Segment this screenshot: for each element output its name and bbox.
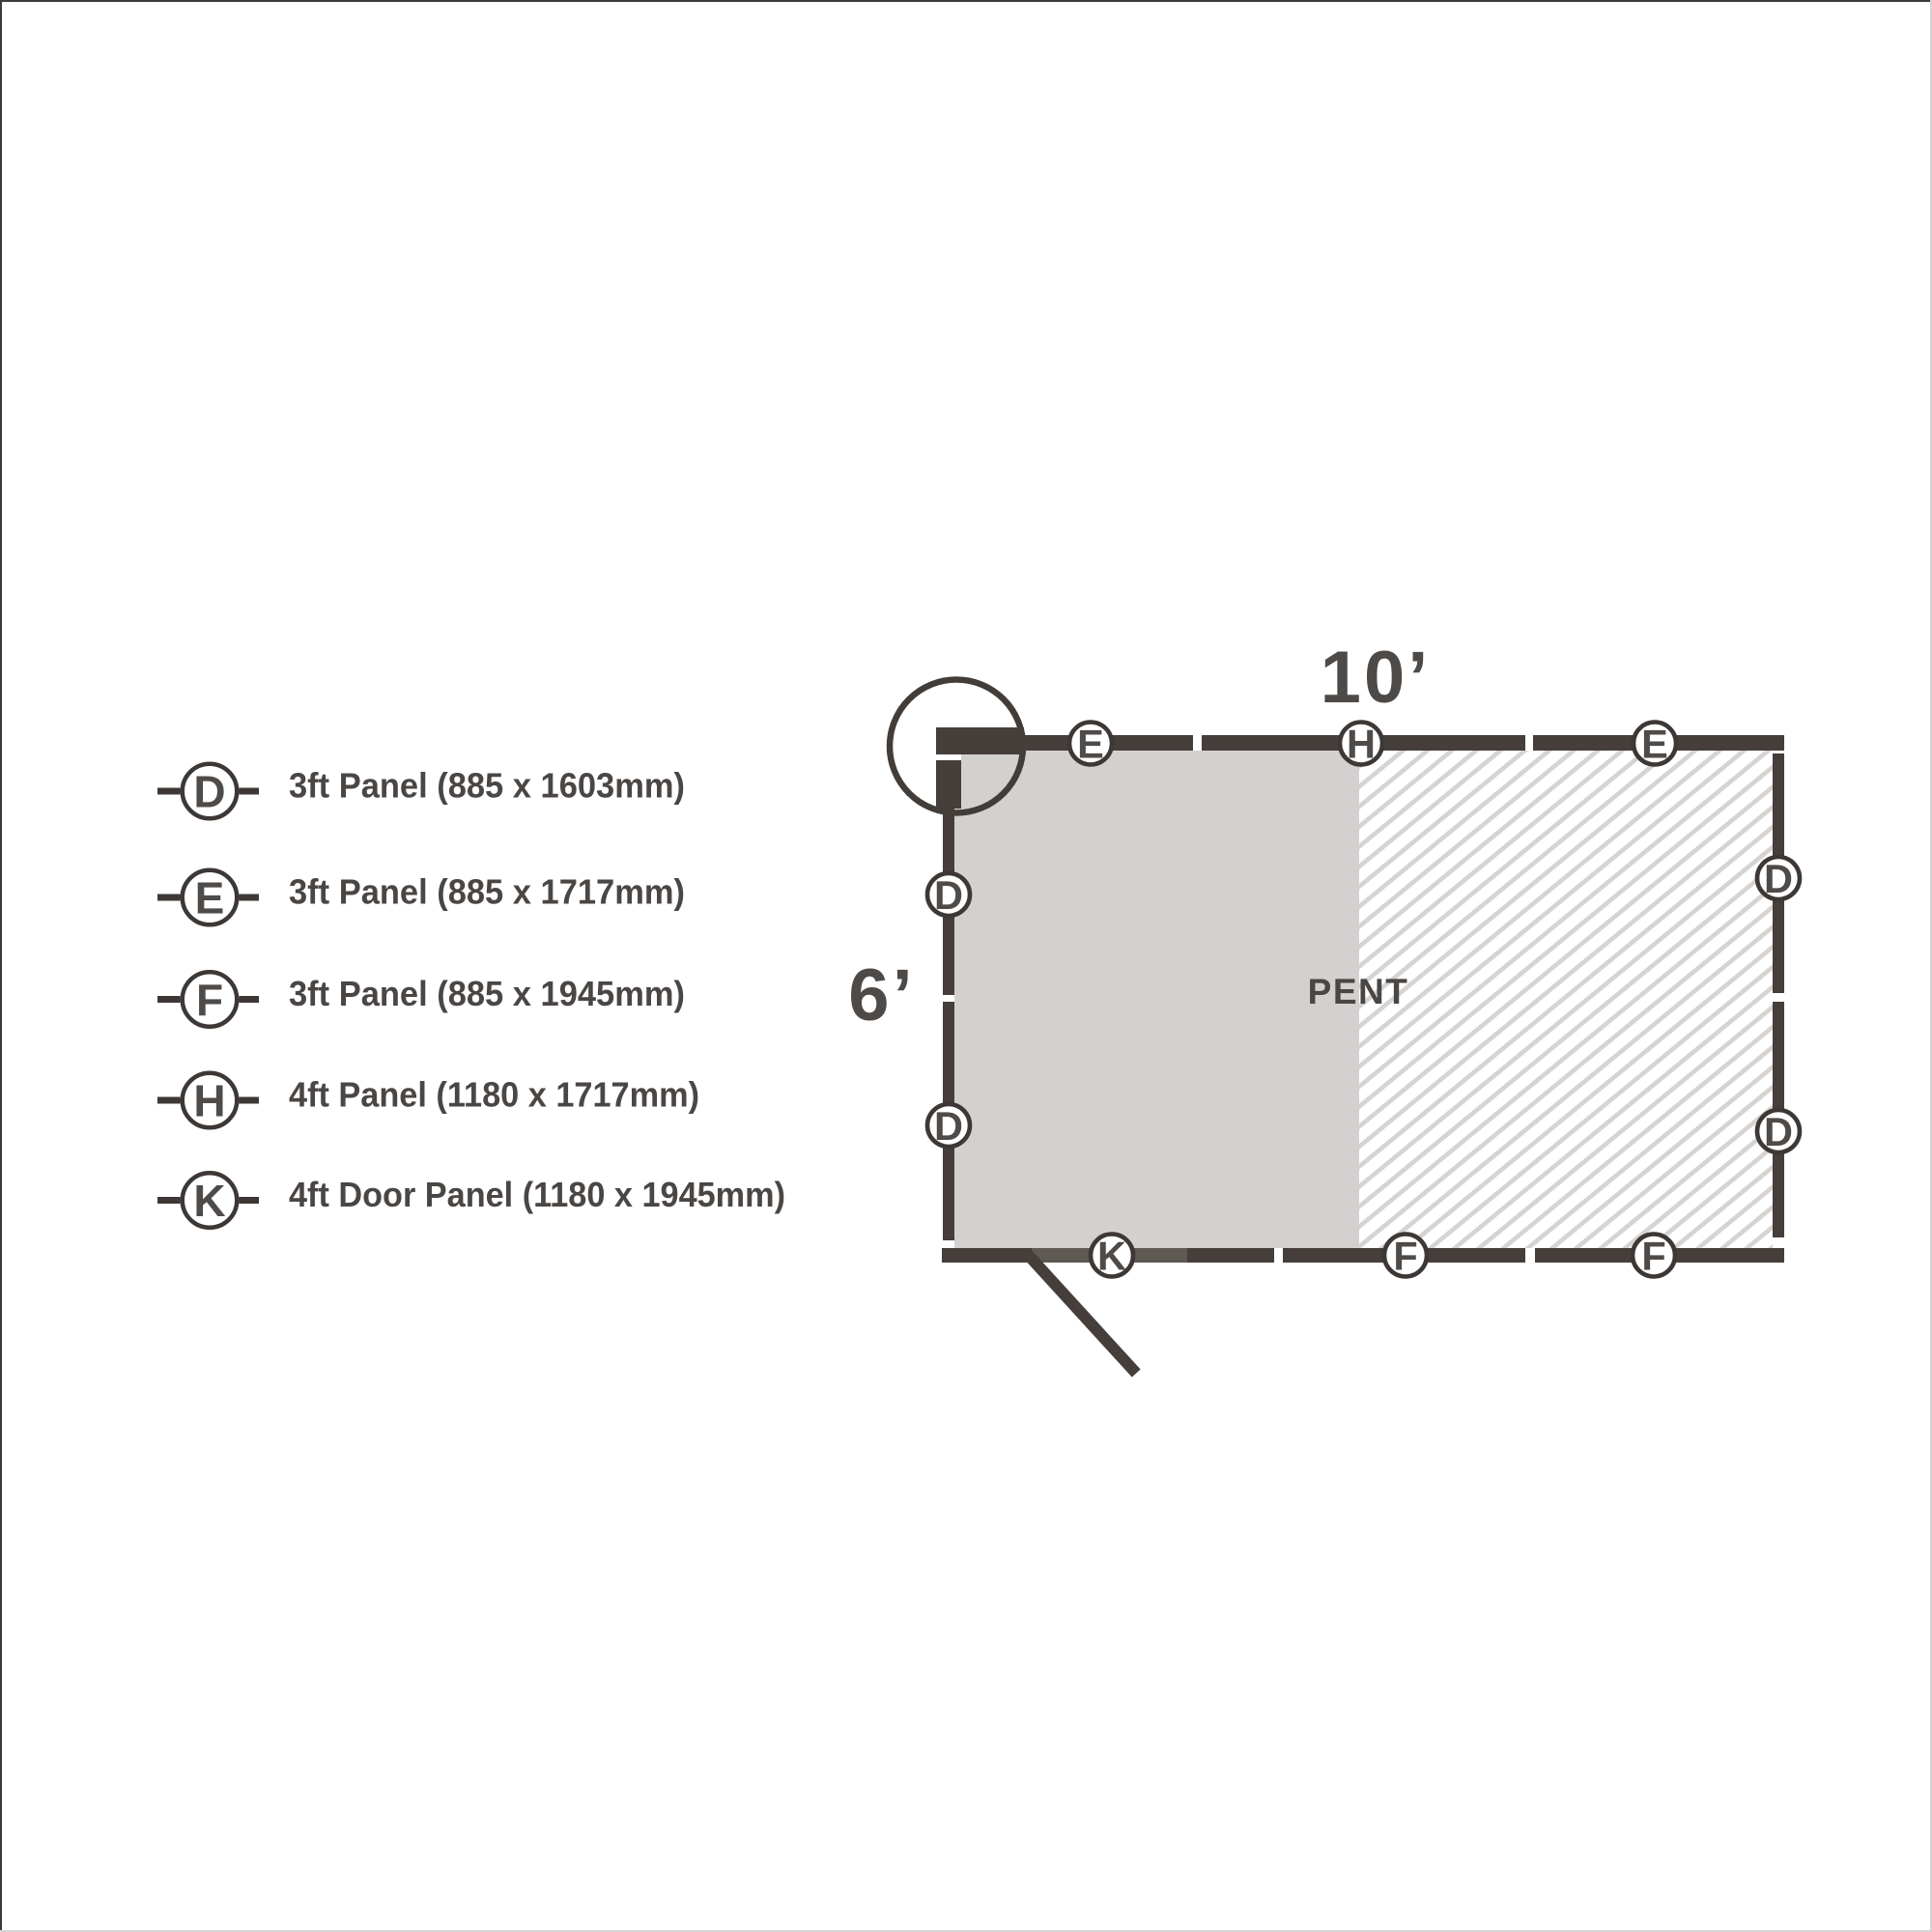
svg-text:F: F xyxy=(1393,1234,1417,1279)
svg-text:H: H xyxy=(1347,722,1376,767)
svg-text:D: D xyxy=(934,872,963,918)
svg-text:4ft Door Panel (1180 x 1945mm): 4ft Door Panel (1180 x 1945mm) xyxy=(289,1175,785,1214)
svg-text:PENT: PENT xyxy=(1308,972,1409,1011)
svg-text:6’: 6’ xyxy=(848,954,915,1037)
svg-text:E: E xyxy=(1077,722,1104,767)
svg-text:K: K xyxy=(193,1176,225,1226)
svg-text:D: D xyxy=(193,767,225,817)
svg-text:E: E xyxy=(195,873,225,923)
svg-text:4ft Panel (1180 x 1717mm): 4ft Panel (1180 x 1717mm) xyxy=(289,1075,699,1115)
svg-text:3ft Panel (885 x 1603mm): 3ft Panel (885 x 1603mm) xyxy=(289,766,685,806)
svg-text:F: F xyxy=(1641,1234,1665,1279)
svg-text:E: E xyxy=(1641,722,1668,767)
svg-text:H: H xyxy=(193,1076,225,1126)
svg-text:D: D xyxy=(1764,856,1793,901)
svg-text:D: D xyxy=(1764,1109,1793,1154)
svg-text:3ft Panel (885 x 1945mm): 3ft Panel (885 x 1945mm) xyxy=(289,974,685,1013)
svg-text:F: F xyxy=(196,975,223,1025)
svg-text:D: D xyxy=(934,1103,963,1149)
svg-text:3ft Panel (885 x 1717mm): 3ft Panel (885 x 1717mm) xyxy=(289,872,685,912)
svg-text:10’: 10’ xyxy=(1321,637,1432,719)
svg-text:K: K xyxy=(1097,1234,1126,1279)
